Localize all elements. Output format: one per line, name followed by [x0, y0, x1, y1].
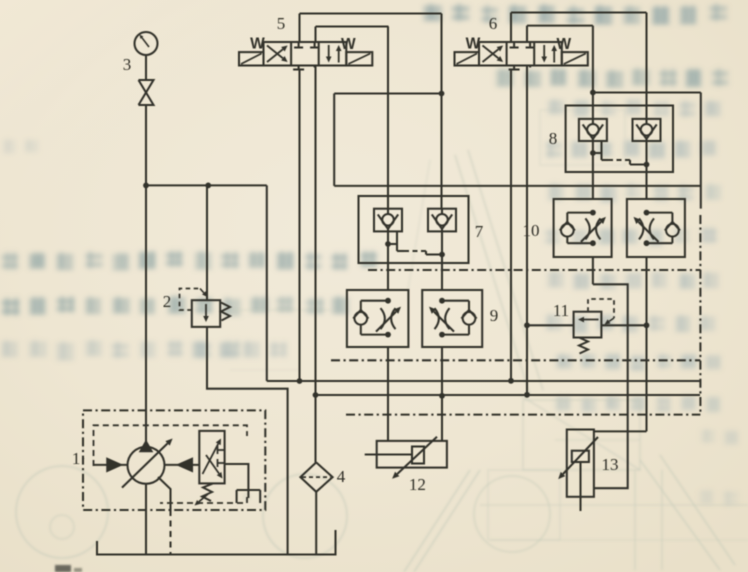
svg-text:8: 8 [549, 129, 558, 148]
svg-text:12: 12 [409, 475, 426, 494]
svg-text:5: 5 [277, 14, 286, 33]
svg-text:6: 6 [489, 14, 498, 33]
svg-text:4: 4 [337, 467, 346, 486]
svg-text:W: W [341, 36, 356, 53]
svg-text:9: 9 [490, 306, 499, 325]
svg-text:W: W [556, 36, 571, 53]
svg-text:10: 10 [523, 221, 540, 240]
svg-text:W: W [250, 36, 265, 53]
svg-text:3: 3 [123, 55, 132, 74]
svg-text:7: 7 [475, 222, 484, 241]
svg-text:W: W [466, 36, 481, 53]
svg-text:11: 11 [553, 301, 569, 320]
svg-text:1·: 1· [72, 449, 86, 468]
svg-text:13: 13 [602, 455, 619, 474]
svg-text:2: 2 [163, 292, 172, 311]
